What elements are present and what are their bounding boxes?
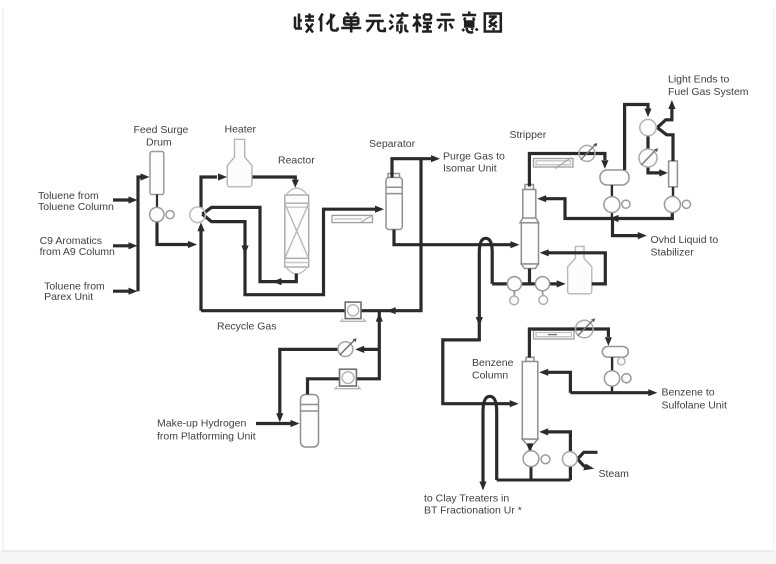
svg-text:Recycle Gas: Recycle Gas [217, 321, 277, 333]
svg-text:Stripper: Stripper [510, 129, 547, 141]
svg-text:BT Fractionation Ur *: BT Fractionation Ur * [424, 505, 522, 517]
svg-text:Heater: Heater [225, 124, 257, 136]
svg-text:Fuel Gas System: Fuel Gas System [668, 86, 749, 98]
svg-text:Reactor: Reactor [278, 155, 315, 167]
svg-text:Toluene Column: Toluene Column [38, 201, 114, 213]
svg-text:Benzene to: Benzene to [662, 387, 715, 399]
svg-text:Benzene: Benzene [472, 357, 514, 369]
svg-text:Feed Surge: Feed Surge [134, 124, 189, 136]
svg-text:Steam: Steam [599, 468, 630, 480]
svg-text:Light Ends to: Light Ends to [668, 74, 729, 86]
svg-text:Isomar Unit: Isomar Unit [443, 163, 497, 175]
svg-text:Column: Column [472, 370, 508, 382]
svg-text:from A9 Column: from A9 Column [40, 246, 115, 258]
svg-text:Separator: Separator [369, 138, 416, 150]
svg-text:Make-up Hydrogen: Make-up Hydrogen [157, 418, 246, 430]
svg-text:Drum: Drum [146, 137, 172, 149]
svg-text:Stabilizer: Stabilizer [651, 246, 695, 258]
svg-text:to Clay Treaters in: to Clay Treaters in [424, 493, 509, 505]
svg-text:Purge Gas to: Purge Gas to [443, 151, 505, 163]
svg-text:from Platforming Unit: from Platforming Unit [157, 431, 256, 443]
svg-text:Parex Unit: Parex Unit [44, 291, 93, 303]
svg-text:Ovhd Liquid to: Ovhd Liquid to [651, 234, 719, 246]
svg-text:Sulfolane Unit: Sulfolane Unit [662, 400, 727, 412]
